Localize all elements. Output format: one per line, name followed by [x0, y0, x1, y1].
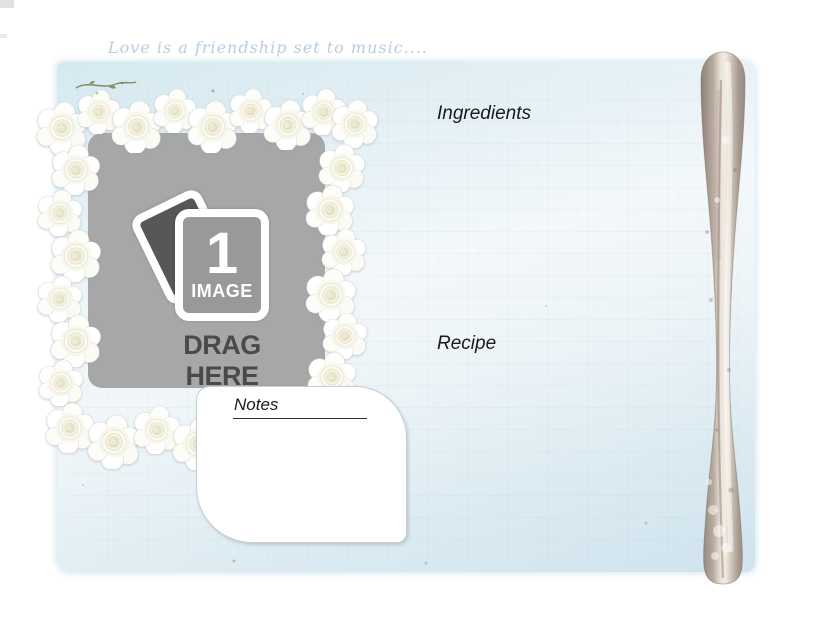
- scan-artifact: [0, 0, 14, 8]
- rose-icon: [51, 145, 101, 195]
- ingredients-label: Ingredients: [437, 103, 531, 125]
- silver-spoon-handle-icon: [695, 50, 751, 585]
- image-count-label: IMAGE: [191, 281, 253, 302]
- image-count: 1: [206, 228, 238, 279]
- quote-text: Love is a friendship set to music....: [108, 38, 428, 57]
- recipe-template-canvas: Love is a friendship set to music.... 1 …: [0, 0, 817, 636]
- notes-panel[interactable]: Notes: [196, 386, 407, 543]
- notes-label: Notes: [234, 395, 278, 415]
- rose-icon: [50, 230, 102, 282]
- scan-artifact: [0, 34, 7, 38]
- photo-stack-icon[interactable]: 1 IMAGE: [175, 209, 269, 321]
- recipe-label: Recipe: [437, 333, 496, 355]
- drag-here-label: DRAG HERE: [146, 330, 298, 392]
- paper-specks: [0, 0, 2, 2]
- rose-icon: [305, 185, 355, 235]
- rose-icon: [38, 360, 84, 406]
- notes-underline: [233, 418, 367, 419]
- rose-icon: [331, 100, 379, 148]
